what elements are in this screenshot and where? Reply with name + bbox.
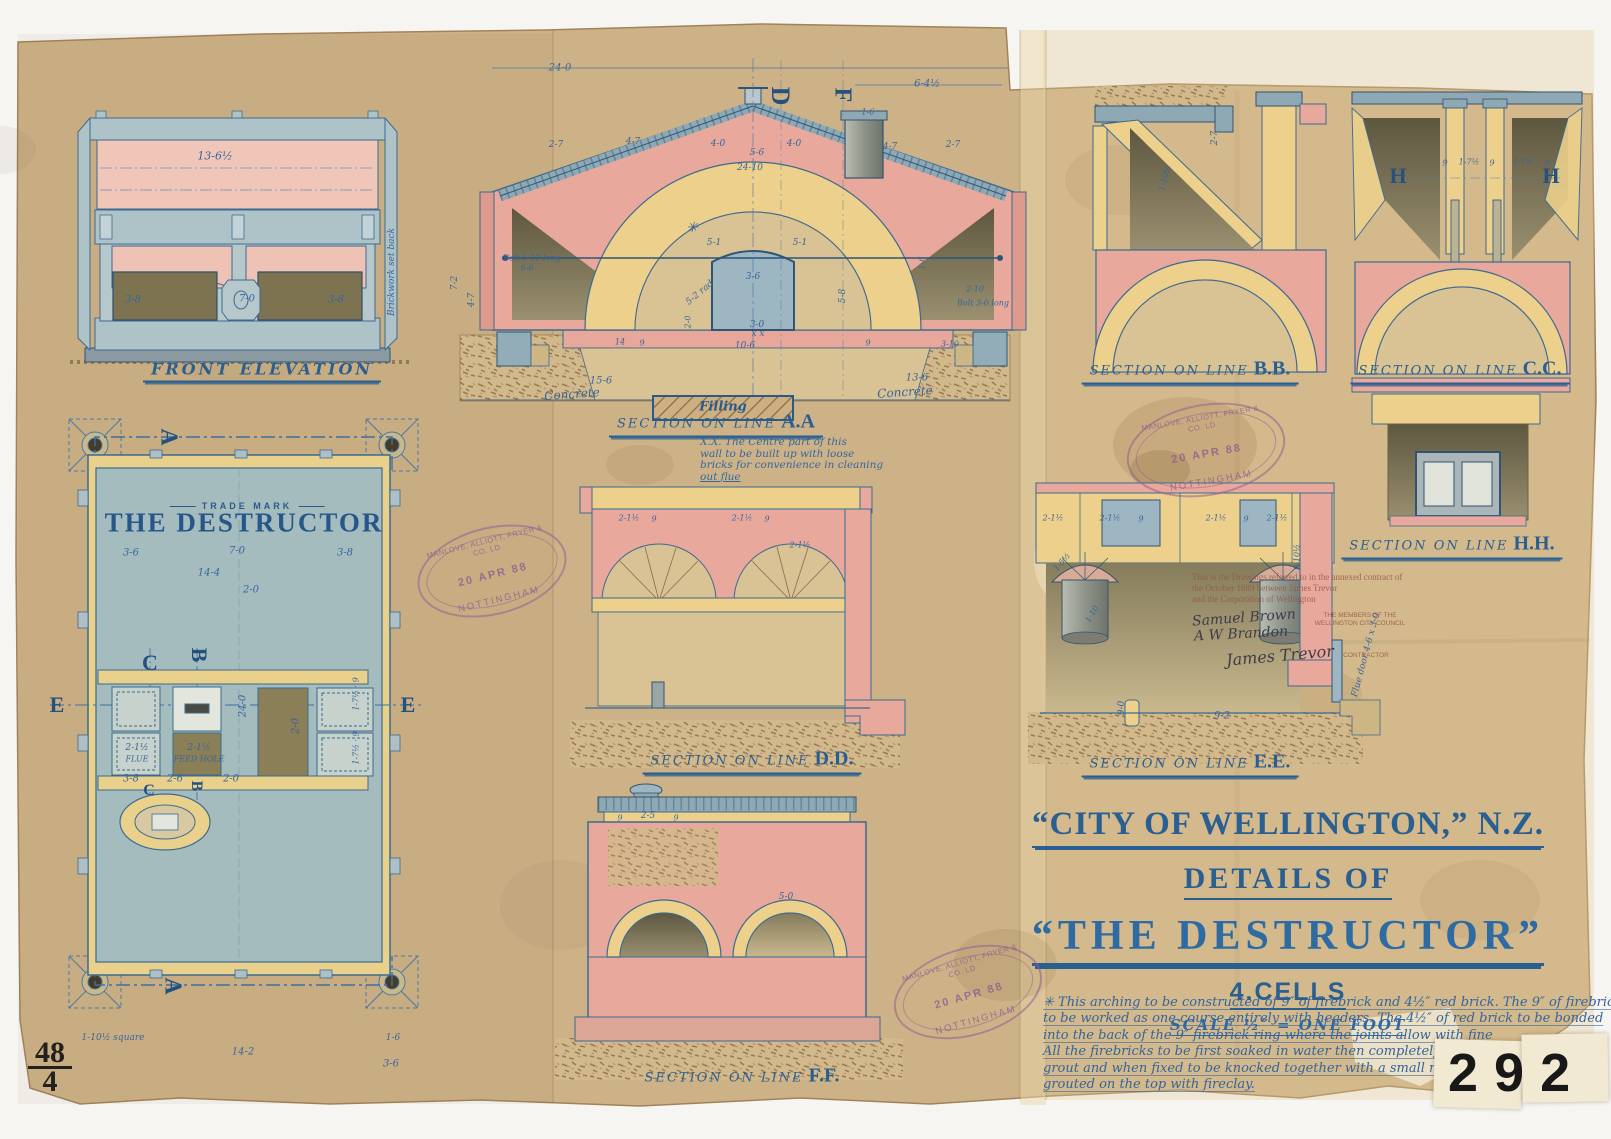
reference-letter: A bbox=[155, 428, 182, 445]
dimension-label: 2-1½ bbox=[1267, 514, 1288, 523]
dimension-label: 9 bbox=[673, 814, 678, 823]
dimension-label: 2-1½ bbox=[732, 514, 753, 523]
dimension-label: 4-7 bbox=[467, 293, 477, 308]
dimension-label: 4-7 bbox=[883, 142, 898, 152]
dimension-label: 1-10½ square bbox=[82, 1033, 145, 1043]
signature-caption: THE MEMBERS OF THE WELLINGTON CITY COUNC… bbox=[1314, 612, 1406, 628]
dimension-label: 14 bbox=[615, 338, 625, 347]
dimension-label: 2-6 bbox=[167, 774, 183, 785]
dimension-label: 9 bbox=[1243, 515, 1248, 524]
dimension-label: 9 bbox=[639, 339, 644, 348]
contract-typed-line: This is the Drawings referred to in the … bbox=[1192, 572, 1442, 583]
dimension-label: 9-10½ bbox=[1293, 544, 1302, 570]
dimension-label: 7-0 bbox=[229, 546, 245, 557]
title-block: “CITY OF WELLINGTON,” N.Z. DETAILS OF “T… bbox=[1008, 806, 1568, 1036]
dimension-label: 2-0 bbox=[243, 585, 259, 596]
dimension-label: 9-2 bbox=[1214, 711, 1230, 722]
reference-letter: E bbox=[50, 692, 65, 718]
reference-letter: C bbox=[142, 650, 158, 676]
dimension-label: 1-10½ bbox=[1157, 164, 1172, 191]
note-line: out flue bbox=[700, 472, 883, 484]
dimension-label: 2-0 bbox=[223, 774, 239, 785]
dimension-label: 6-6 bbox=[521, 264, 534, 273]
dimension-label: 1-7½ bbox=[1459, 158, 1480, 167]
dimension-label: 2-1½ bbox=[125, 743, 148, 753]
dimension-label: 9 bbox=[1138, 515, 1143, 524]
reference-letter: D bbox=[765, 87, 795, 106]
title-name-line: “THE DESTRUCTOR” bbox=[1032, 912, 1544, 966]
dimension-label: 2-0 bbox=[684, 316, 693, 329]
dimension-label: 1-6 bbox=[918, 257, 927, 270]
dimension-label: 2-7 bbox=[1210, 131, 1220, 146]
dimension-label: 14-4 bbox=[198, 568, 220, 579]
dimension-label: 3-8 bbox=[328, 295, 344, 306]
reference-letter: B bbox=[187, 781, 205, 792]
dimension-label: 3-8 bbox=[337, 548, 353, 559]
plate-number: 48 4 bbox=[28, 1040, 72, 1095]
reference-letter: H bbox=[1542, 163, 1559, 189]
contract-annotation: This is the Drawings referred to in the … bbox=[1192, 572, 1442, 605]
dimension-label: 1-7½ · 9 bbox=[352, 677, 361, 710]
dimension-label: 24-0 bbox=[238, 695, 249, 717]
reference-letter: H bbox=[1389, 163, 1406, 189]
dimension-label: 1-5½ bbox=[1052, 551, 1072, 573]
dimension-label: 2-1½ bbox=[619, 514, 640, 523]
signature-caption: CONTRACTOR bbox=[1320, 652, 1412, 660]
dimension-label: 2-5 bbox=[641, 811, 656, 821]
dimension-label: Concrete bbox=[544, 385, 600, 403]
dimension-label: 4-0 bbox=[711, 139, 726, 149]
dimension-label: x x bbox=[751, 329, 764, 339]
dimension-label: 2-1½ bbox=[187, 743, 210, 753]
title-details-line: DETAILS OF bbox=[1184, 862, 1393, 900]
dimension-label: 4-0 bbox=[787, 139, 802, 149]
dimension-label: 3-10 bbox=[941, 340, 959, 349]
dimension-label: 1-7½ bbox=[1513, 158, 1534, 167]
stamp-date-text: 20 APR 88 bbox=[1170, 441, 1242, 465]
plate-number-bottom: 4 bbox=[28, 1069, 72, 1095]
note-line: bricks for convenience in cleaning bbox=[700, 460, 883, 472]
dimension-label: 9 bbox=[865, 339, 870, 348]
dimension-label: 2-10 bbox=[966, 285, 984, 294]
dimension-label: 9 bbox=[651, 515, 656, 524]
dimension-label: 2-7 bbox=[946, 140, 961, 150]
dimension-label: 2-1½ bbox=[1043, 514, 1064, 523]
dimension-label: 3-6 bbox=[383, 1059, 399, 1070]
dimension-label: 9 bbox=[617, 814, 622, 823]
reference-letter: F bbox=[829, 88, 856, 103]
dimension-label: 24-0 bbox=[549, 63, 571, 74]
dimension-label: 24-10 bbox=[737, 163, 763, 173]
dimension-label: 1-10 bbox=[1084, 604, 1101, 624]
dimension-label: 9 bbox=[764, 515, 769, 524]
dimension-label: FEED HOLE bbox=[174, 755, 225, 764]
dimension-label: 1-7½ · 9 bbox=[352, 731, 361, 764]
dimension-label: 1-6 bbox=[862, 108, 875, 117]
dimension-label: 5-1 bbox=[707, 238, 722, 248]
dimension-label: 1-6 bbox=[386, 1033, 401, 1043]
dimension-label: 13-6½ bbox=[197, 150, 232, 163]
contract-typed-line: and the Corporation of Wellington bbox=[1192, 594, 1442, 605]
dimension-label: ✳ bbox=[686, 220, 698, 236]
dimension-label: Bolt 5-10 long bbox=[503, 254, 560, 263]
dimension-label: 7-0 bbox=[239, 294, 255, 305]
dimension-label: 4-7 bbox=[626, 137, 641, 147]
dimension-label: 2-7 bbox=[549, 140, 564, 150]
dimension-label: 9-0 bbox=[1117, 701, 1127, 716]
title-scale-line: SCALE ½″ = ONE FOOT bbox=[1170, 1016, 1406, 1036]
title-cells-line: 4.CELLS bbox=[1230, 978, 1347, 1010]
stamp-date-text: 20 APR 88 bbox=[457, 560, 529, 589]
reference-letter: E bbox=[401, 692, 416, 718]
title-city-line: “CITY OF WELLINGTON,” N.Z. bbox=[1032, 806, 1544, 848]
dimension-label: 2-1½ bbox=[1206, 514, 1227, 523]
section-aa-note: X.X. The Centre part of this wall to be … bbox=[700, 437, 883, 483]
dimension-label: 3-8 bbox=[123, 774, 139, 785]
dimension-label: 3-8 bbox=[125, 295, 141, 306]
dimension-label: 5-0 bbox=[779, 892, 794, 902]
dimension-label: 5-2 rad bbox=[684, 279, 716, 308]
archive-number: 292 bbox=[1448, 1042, 1586, 1104]
dimension-label: 6-4½ bbox=[914, 79, 940, 90]
dimension-label: FLUE bbox=[125, 755, 148, 764]
dimension-label: 9 bbox=[1442, 159, 1447, 168]
annotation-layer: FRONT ELEVATION TRADE MARK THE DESTRUCTO… bbox=[0, 0, 1611, 1139]
dimension-label: 9 bbox=[1489, 159, 1494, 168]
contract-typed-line: the October 1889 between James Trevor bbox=[1192, 583, 1442, 594]
dimension-label: 2-0 bbox=[291, 718, 302, 734]
dimension-label: 3-6 bbox=[746, 272, 761, 282]
dimension-label: 5-8 bbox=[838, 289, 848, 304]
note-line: X.X. The Centre part of this bbox=[700, 437, 883, 449]
dimension-label: Bolt 3-0 long bbox=[957, 299, 1009, 308]
dimension-label: 13-6 bbox=[906, 373, 928, 384]
drawing-sheet: { "sheet": { "numbers": { "archive_numbe… bbox=[0, 0, 1611, 1139]
dimension-label: 2-1½ bbox=[790, 541, 811, 550]
dimension-label: 2-1½ bbox=[1100, 514, 1121, 523]
dimension-label: 5-6 bbox=[750, 148, 765, 158]
dimension-label: 7-2 bbox=[450, 276, 460, 291]
reference-letter: A bbox=[159, 977, 186, 994]
reference-letter: B bbox=[186, 648, 212, 663]
stamp-date-text: 20 APR 88 bbox=[933, 980, 1005, 1011]
dimension-label: 5-1 bbox=[793, 238, 808, 248]
dimension-label: 3-6 bbox=[123, 548, 139, 559]
dimension-label: Brickwork set back bbox=[387, 228, 397, 316]
dimension-label: 14-2 bbox=[232, 1047, 254, 1058]
dimension-label: Concrete bbox=[877, 383, 933, 401]
archive-number-cards: 292 bbox=[1434, 1030, 1611, 1110]
reference-letter: C bbox=[143, 782, 155, 800]
dimension-label: 10-6 bbox=[735, 341, 755, 351]
